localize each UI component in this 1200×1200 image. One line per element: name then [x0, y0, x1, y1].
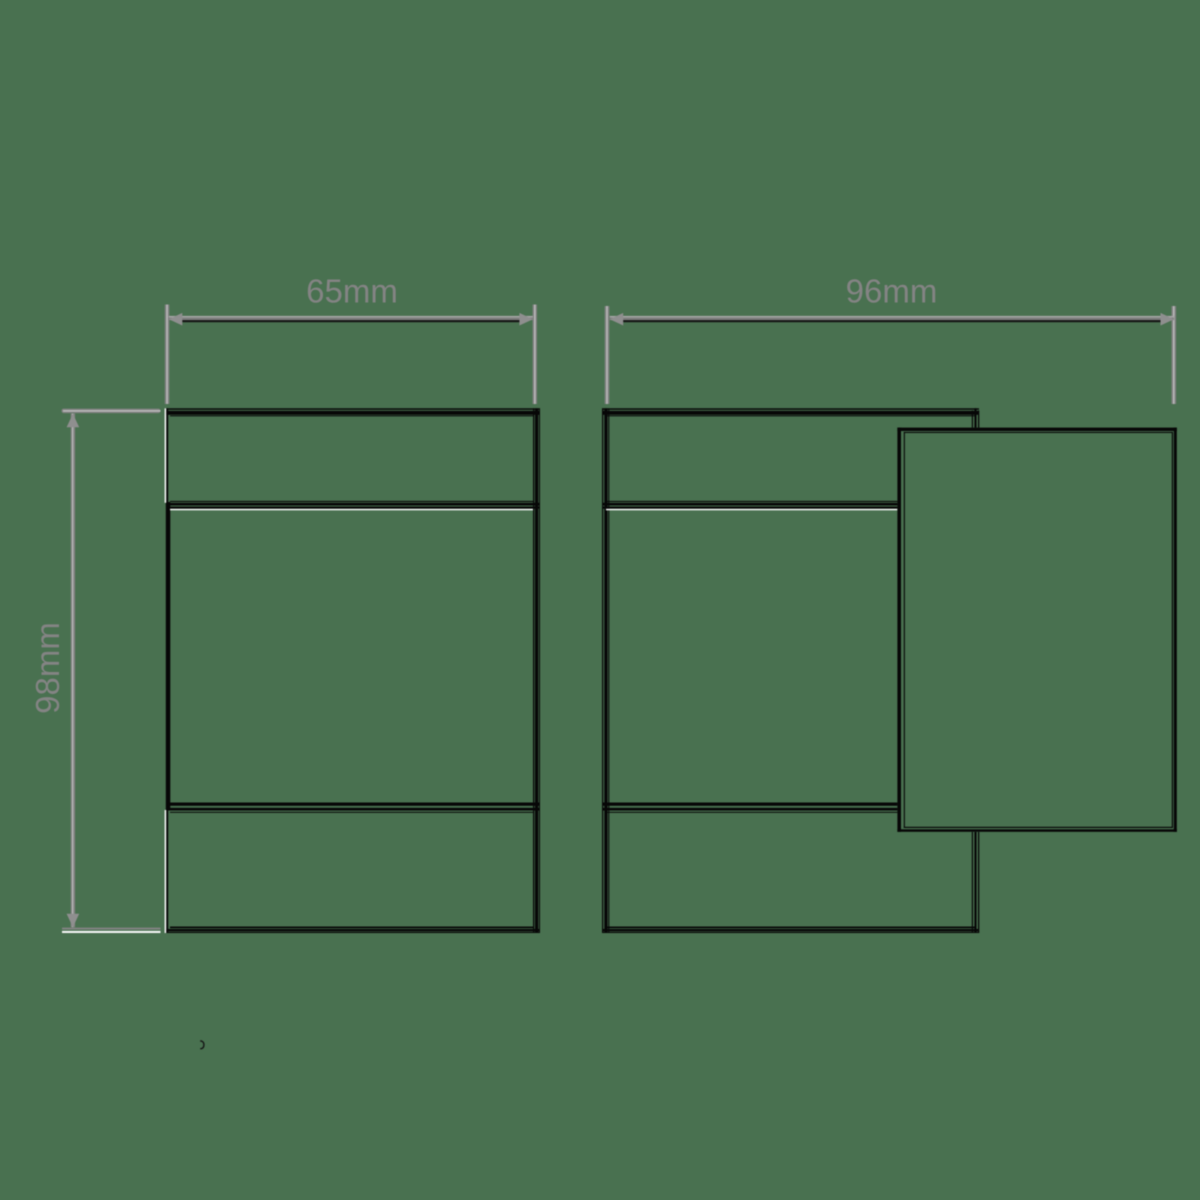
svg-text:96mm: 96mm [846, 272, 938, 309]
svg-text:65mm: 65mm [306, 272, 398, 309]
svg-text:98mm: 98mm [29, 622, 66, 714]
